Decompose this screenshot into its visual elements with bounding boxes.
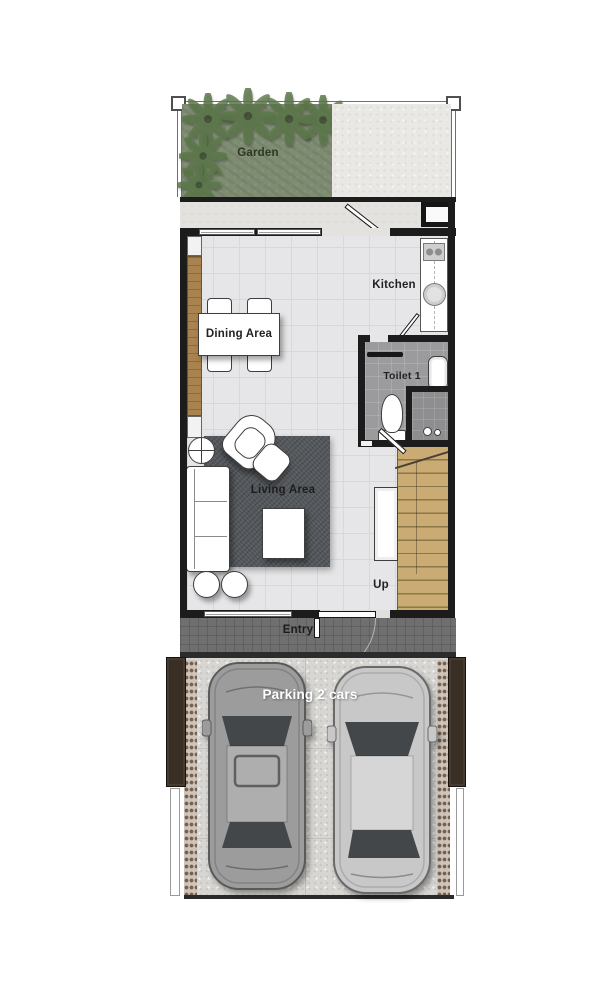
side-fence-right [448, 657, 466, 787]
toiletry-bottle [434, 429, 441, 436]
entry-label: Entry [258, 624, 338, 637]
terrace-walkway [180, 202, 448, 229]
toilet-shelf [367, 352, 403, 357]
door-opening-top [322, 228, 390, 236]
up-label: Up [362, 579, 400, 592]
dining-table: Dining Area [198, 313, 280, 356]
sofa-cushion-line [195, 501, 227, 502]
wall-niche [361, 441, 372, 446]
floor-plan: Garden Dining Area Kitchen Toilet 1 [0, 0, 613, 1000]
toilet-wall-bottom [358, 440, 455, 447]
sofa [186, 466, 230, 572]
dining-area-label: Dining Area [206, 328, 272, 341]
wall-post [187, 416, 202, 438]
hall-console [374, 487, 398, 561]
toilet-wall-top [388, 335, 455, 342]
toiletry-bottle [423, 427, 432, 436]
window-top [257, 229, 321, 235]
entry-door-leaf [318, 611, 376, 618]
toilet-wall-left [358, 335, 365, 447]
window-bottom [204, 611, 292, 617]
side-table [188, 437, 215, 464]
stove-icon [423, 243, 445, 261]
window-top [199, 229, 255, 235]
wall-post [187, 236, 202, 256]
house-wall-right [448, 197, 455, 660]
kerb-right [456, 788, 464, 896]
sofa-cushion-line [195, 536, 227, 537]
house-wall-left [180, 228, 187, 618]
washbasin [428, 356, 448, 390]
kerb-left [170, 788, 180, 896]
living-area-label: Living Area [233, 484, 333, 497]
patio-area [332, 104, 451, 197]
stair-rail-line [416, 462, 417, 574]
garden-label: Garden [208, 147, 308, 160]
fence-right [451, 111, 456, 197]
coffee-table [262, 508, 305, 559]
side-fence-left [166, 657, 186, 787]
toilet-wc-bowl [381, 394, 403, 433]
kitchen-label: Kitchen [354, 279, 434, 292]
parking-label: Parking 2 cars [230, 688, 390, 701]
pouf [221, 571, 248, 598]
staircase [397, 447, 448, 610]
pouf [193, 571, 220, 598]
sofa-back-line [194, 469, 195, 569]
